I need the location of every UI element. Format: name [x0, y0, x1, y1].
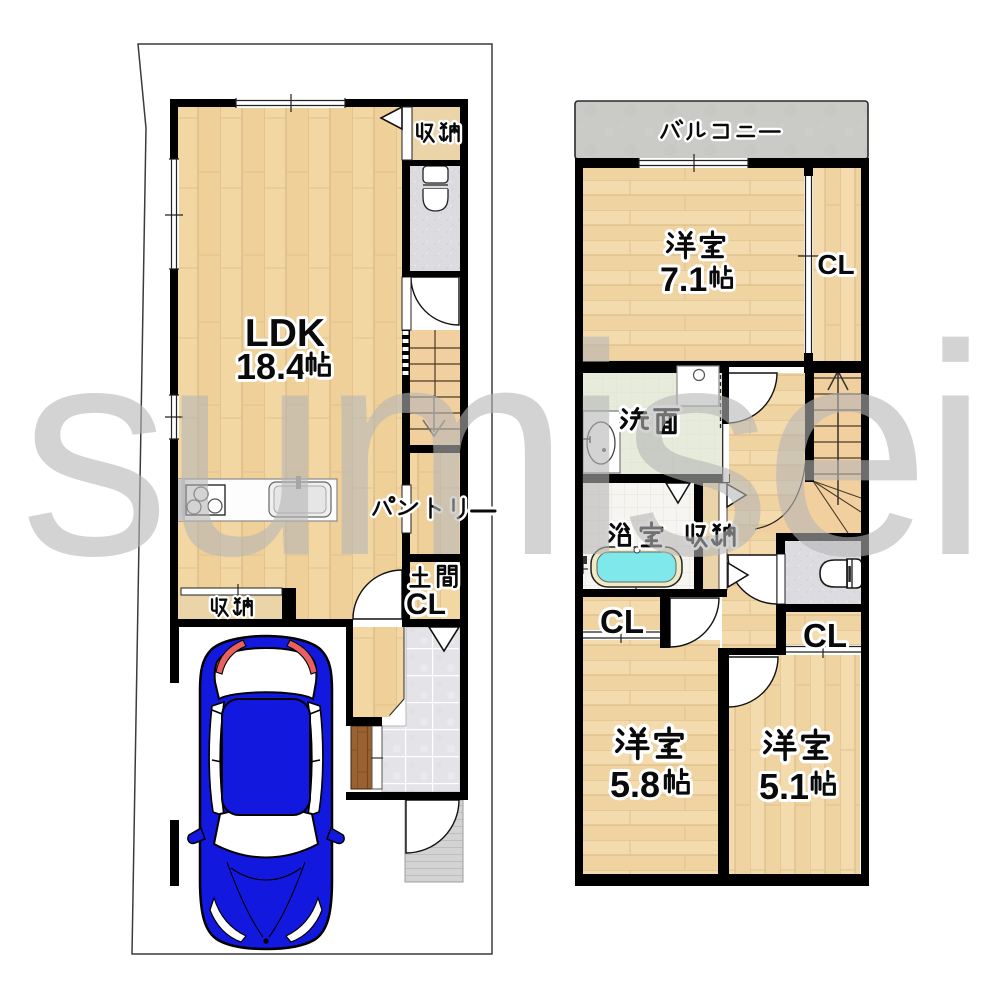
svg-text:5.8: 5.8 [610, 764, 660, 805]
svg-text:sumisei: sumisei [20, 282, 981, 618]
svg-text:CL: CL [817, 249, 854, 280]
svg-text:5.1: 5.1 [759, 766, 809, 807]
svg-text:CL: CL [803, 617, 847, 654]
